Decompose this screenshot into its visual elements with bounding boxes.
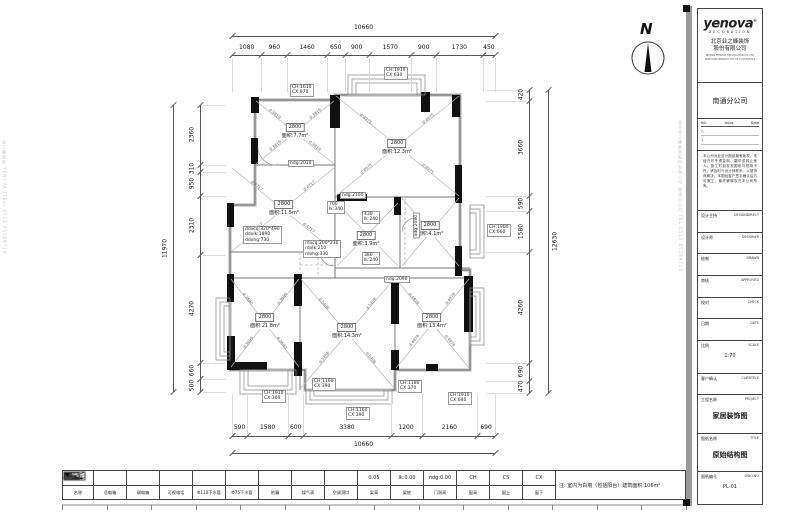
legend-item: 总电箱 [93, 471, 126, 499]
row-label-cn: 客户确认 [701, 376, 717, 382]
flag-icon: 0.05 [358, 471, 390, 486]
legend-item-label: 梁高 [358, 486, 390, 499]
room-height: 2800 [423, 313, 442, 322]
room-height: 2800 [421, 221, 440, 230]
room-label: 2800面积:21.8m² [250, 303, 280, 329]
text-icon: CS [490, 471, 522, 486]
dim-ext [486, 393, 527, 394]
branch-name: 南通分公司 [698, 83, 762, 119]
text-icon: ndg:0.00 [424, 471, 456, 486]
callout: CH:1160CX:390 [346, 407, 370, 420]
callout: ndg:2090 [384, 276, 410, 283]
callout: CH:1610CX:970 [290, 84, 314, 97]
room-height: 2800 [275, 200, 294, 209]
legend-item: lk:0.00梁底 [390, 471, 423, 499]
watermark-left: 业之峰装饰 YENOVA (TEL) 0513 85289710 [1, 140, 7, 254]
room-area: 面积:12.3m² [382, 149, 412, 155]
dim-label: 950 [189, 170, 196, 198]
ruler-tick [329, 505, 330, 510]
callout-line: lk:340 [329, 207, 343, 212]
company-logo-block: yenova® DECORATION 北京业之峰装饰 股份有限公司 BEIJIN… [698, 9, 762, 83]
title-block-row: 设计师DESIGNER [698, 233, 762, 255]
callout-line: ndg:2080 [414, 215, 419, 237]
legend-item-label: 门洞高 [424, 486, 456, 499]
title-block-row: 绘制DRAWN [698, 254, 762, 276]
ruler-tick [374, 505, 375, 510]
dim-label: 2360 [189, 120, 196, 148]
callout: CH:1180CX:370 [398, 380, 422, 393]
callout-line: CX:970 [292, 90, 312, 95]
room-label: 2800面积:13.4m² [417, 303, 447, 329]
watermark-right: 北京业之峰装饰股份有限公司 南通分公司 TEL:0513 85289710 [677, 120, 683, 272]
row-label-cn: 日期 [701, 321, 709, 327]
row-label-en: DESIGNER [742, 235, 759, 239]
dim-ext [327, 58, 328, 92]
dim-label: 500 [189, 371, 196, 399]
dim-ext [486, 252, 527, 253]
callout-line: CX:370 [400, 386, 420, 391]
row-label-en: CLIENTELE [741, 376, 759, 380]
legend-item-label: 窗上 [490, 486, 522, 499]
callout: CH:1910CX:630 [384, 67, 408, 80]
room-area: 面积:14.3m² [332, 333, 362, 339]
callout: CH:1910CX:300 [262, 390, 286, 403]
dim-label: 1200 [392, 424, 420, 431]
room-label: 2800面积:7.7m² [282, 113, 309, 139]
dim-ext [436, 58, 437, 92]
dim-line [200, 105, 201, 392]
yenova-logo: yenova® [698, 15, 762, 30]
row-label-cn: 比例 [701, 343, 709, 349]
dim-ext [369, 58, 370, 92]
circle-icon [193, 471, 225, 486]
ruler-tick [285, 505, 286, 510]
title-block-row: 图纸名称TITLE原始结构图 [698, 434, 762, 472]
title-block-row: 审核APPROVED [698, 276, 762, 298]
row-label-en: SCALE [748, 343, 759, 347]
room-label: 2800面积:12.3m² [382, 129, 412, 155]
callout: 700lk:340 [327, 201, 345, 214]
dim-line [548, 90, 549, 393]
dim-total: 10660 [348, 441, 380, 448]
title-block-row: 客户确认CLIENTELE [698, 374, 762, 396]
room-label: 2800面积:14.3m² [332, 313, 362, 339]
ruler-tick [641, 505, 642, 510]
room-area: 面积:4.1m² [417, 231, 444, 237]
dim-label: 590 [518, 189, 525, 217]
diagbox-icon [127, 471, 159, 486]
legend-item: 可视电话 [159, 471, 192, 499]
legend-item-label: 地漏 [259, 486, 291, 499]
dim-label: 2160 [435, 424, 463, 431]
dim-ext [303, 394, 304, 434]
legend-item: 弱电箱 [126, 471, 159, 499]
callout-line: CX:300 [264, 396, 284, 401]
dim-total: 12630 [552, 225, 559, 257]
dim-ext [232, 58, 233, 92]
legend-item: Φ75下水管 [225, 471, 258, 499]
dim-label: 4260 [518, 293, 525, 321]
dim-ext [247, 394, 248, 434]
dim-label: 2310 [189, 211, 196, 239]
north-label: N [640, 20, 653, 38]
dim-label: 4270 [189, 294, 196, 322]
branch-label: 南通分公司 [713, 96, 748, 106]
row-label-en: APPROVED [741, 278, 759, 282]
dim-line [232, 436, 495, 437]
dim-ext [203, 165, 226, 166]
room-height: 2800 [286, 123, 305, 132]
row-label-cn: 审核 [701, 278, 709, 284]
legend-item: 地漏 [258, 471, 291, 499]
row-label-cn: 工程名称 [701, 397, 717, 403]
dim-ext [495, 58, 496, 92]
dim-ext [203, 379, 226, 380]
dim-ext [483, 58, 484, 92]
dim-label: 600 [282, 424, 310, 431]
dim-label: 1580 [518, 217, 525, 245]
dim-line [232, 55, 495, 56]
room-height: 2800 [388, 139, 407, 148]
dim-ext [287, 58, 288, 92]
row-label-en: DESIGNDIRECT [734, 213, 759, 217]
room-height: 2800 [357, 231, 376, 240]
title-block-row: 工程名称PROJECT家居装饰图 [698, 395, 762, 433]
wedge-icon [94, 471, 126, 486]
issue-col-date: Date [751, 121, 759, 125]
callout: CH:1910CX:640 [448, 392, 472, 405]
legend-item-label: Φ75下水管 [226, 486, 258, 499]
ruler-tick [62, 505, 63, 510]
row-value: PL-01 [701, 480, 759, 490]
symbol-text: 0.05 [368, 475, 379, 481]
callout: 430lk:240 [362, 211, 380, 224]
dim-label: 420 [518, 81, 525, 109]
title-block-rows: 设计主持DESIGNDIRECT设计师DESIGNER绘制DRAWN审核APPR… [698, 211, 762, 504]
legend-item: CH窗高 [456, 471, 489, 499]
room-height: 2800 [338, 323, 357, 332]
dim-ext [486, 211, 527, 212]
row-label-cn: 校对 [701, 300, 709, 306]
dim-label: 900 [343, 44, 371, 51]
ruler-tick [552, 505, 553, 510]
room-label: 2800面积:4.1m² [417, 211, 444, 237]
dim-ext [203, 172, 226, 173]
dim-ext [495, 394, 496, 434]
row-label-en: DWG.NO [745, 474, 759, 478]
room-height: 2800 [256, 313, 275, 322]
room-label: 2800面积:11.5m² [269, 190, 299, 216]
dim-label: 590 [226, 424, 254, 431]
room-area: 面积:3.9m² [353, 241, 380, 247]
issue-row: 1 [701, 136, 759, 145]
circlesm-icon [226, 471, 258, 486]
dim-ext [203, 363, 226, 364]
room-area: 面积:7.7m² [282, 133, 309, 139]
text-icon: lk:0.00 [391, 471, 423, 486]
row-label-en: DRAWN [747, 256, 760, 260]
dim-label: 1460 [293, 44, 321, 51]
dim-label: 1080 [233, 44, 261, 51]
callout-line: lk:240 [364, 217, 378, 222]
ruler-tick [463, 505, 464, 510]
dim-label: 470 [518, 372, 525, 400]
callout-line: rdxhg:330 [305, 252, 339, 257]
legend-item: ndg:0.00门洞高 [423, 471, 456, 499]
dim-label: 1730 [445, 44, 473, 51]
dim-ext [411, 58, 412, 92]
dim-ext [261, 58, 262, 92]
callout-line: ddxhg:730 [245, 238, 280, 243]
legend-item: Φ110下水管 [192, 471, 225, 499]
issue-col-issue: Issue [724, 121, 733, 125]
row-label-cn: 绘制 [701, 256, 709, 262]
legend-item-label: 可视电话 [160, 486, 192, 499]
north-arrow [632, 42, 664, 74]
dim-total: 11970 [162, 232, 169, 264]
row-label-en: DATE [750, 321, 759, 325]
callout: ndg:2080 [413, 213, 420, 239]
legend-item-label: 煤气表 [292, 486, 324, 499]
title-block-row: 设计主持DESIGNDIRECT [698, 211, 762, 233]
legend-strip: 图例 名称 总电箱弱电箱可视电话Φ110下水管Φ75下水管地漏煤气表空调洞口0.… [62, 470, 686, 500]
divider-dot-bottom [683, 499, 690, 506]
callout: 380lk:240 [362, 252, 380, 265]
row-label-en: TITLE [750, 436, 759, 440]
legend-header-name: 名称 [63, 486, 93, 499]
dim-line [232, 36, 495, 37]
legend-item-label: 梁底 [391, 486, 423, 499]
dim-ext [345, 58, 346, 92]
callout-line: ndg:2100 [342, 193, 364, 198]
title-block-row: 校对CHECK [698, 298, 762, 320]
divider-dot-top [683, 5, 690, 12]
dim-label: 3660 [518, 134, 525, 162]
drawing-sheet: N 10809601460650900157090017304501066059… [0, 0, 800, 512]
callout-line: CX:630 [386, 73, 406, 78]
dim-ext [486, 101, 527, 102]
callout-line: ndg:2090 [386, 277, 408, 282]
legend-item: CX窗下 [522, 471, 555, 499]
company-name-en2: NANTONG BRANCH TEL:0513 85289710 [701, 58, 759, 62]
legend-item-label: 空调洞口 [325, 486, 357, 499]
room-label: 2800面积:3.9m² [353, 221, 380, 247]
legend-item: 空调洞口 [324, 471, 357, 499]
room-area: 面积:13.4m² [417, 323, 447, 329]
legend-item: 煤气表 [291, 471, 324, 499]
ruler-tick [107, 505, 108, 510]
dim-ext [203, 196, 226, 197]
issue-table: NO. Issue Date △ 1 [698, 119, 762, 151]
dim-label: 3380 [333, 424, 361, 431]
title-block: yenova® DECORATION 北京业之峰装饰 股份有限公司 BEIJIN… [697, 8, 763, 505]
callout: ddxcq:320*490ddxlk:1890ddxhg:730 [243, 226, 282, 244]
dim-ext [203, 392, 226, 393]
row-label-en: PROJECT [745, 397, 759, 401]
gasbox-icon [292, 471, 324, 486]
row-value: 家居装饰图 [701, 403, 759, 421]
callout-line: CX:640 [450, 398, 470, 403]
sheet-divider [686, 6, 692, 506]
title-block-row: 图纸编号DWG.NOPL-01 [698, 472, 762, 504]
callout: CH:1900CX:660 [487, 224, 511, 237]
callout: CH:1160CX:390 [312, 378, 336, 391]
ruler-tick [597, 505, 598, 510]
text-icon: CH [457, 471, 489, 486]
dim-line [232, 453, 495, 454]
callout-line: CX:660 [489, 230, 509, 235]
dim-label: 900 [410, 44, 438, 51]
dim-line [529, 90, 530, 393]
text-icon: CX [523, 471, 555, 486]
callout-line: lk:240 [364, 258, 378, 263]
legend-item-label: 窗下 [523, 486, 555, 499]
row-label-cn: 图纸名称 [701, 436, 717, 442]
row-label-en: CHECK [748, 300, 759, 304]
dim-ext [203, 105, 226, 106]
callout-line: ndg:2010 [290, 161, 312, 166]
linesbox-icon [160, 471, 192, 486]
ruler-tick [196, 505, 197, 510]
callout: rdxcq:200*230rdxlk:210rdxhg:330 [303, 240, 341, 258]
dim-ext [203, 255, 226, 256]
title-block-row: 日期DATE [698, 319, 762, 341]
area-note: 注: 室内为白墙（包括阳台）建筑面积:106m² [555, 471, 685, 499]
issue-col-no: NO. [701, 121, 707, 125]
row-value: 1:70 [701, 349, 759, 359]
dim-label: 450 [475, 44, 503, 51]
row-label-cn: 设计主持 [701, 213, 717, 219]
title-block-row: 比例SCALE1:70 [698, 341, 762, 374]
dim-ext [422, 394, 423, 434]
legend-item: 0.05梁高 [357, 471, 390, 499]
dim-total: 10660 [348, 24, 380, 31]
ruler-tick [419, 505, 420, 510]
room-area: 面积:21.8m² [250, 323, 280, 329]
ruler-tick [151, 505, 152, 510]
legend-item-label: 弱电箱 [127, 486, 159, 499]
callout: ndg:2100 [340, 192, 366, 199]
issue-row: △ [701, 127, 759, 136]
drain-icon [259, 471, 291, 486]
acircle-icon [325, 471, 357, 486]
row-label-cn: 设计师 [701, 235, 713, 241]
disclaimer-text: 本公司对此设计图纸拥有版权，未经许可不得复制、翻印或转让他人。施工时如发现图纸与… [698, 151, 762, 211]
legend-item: CS窗上 [489, 471, 522, 499]
dim-label: 960 [260, 44, 288, 51]
ruler-tick [508, 505, 509, 510]
room-area: 面积:11.5m² [269, 210, 299, 216]
ruler-tick [240, 505, 241, 510]
callout-line: CX:390 [314, 384, 334, 389]
callout: ndg:2010 [288, 160, 314, 167]
legend-item-label: Φ110下水管 [193, 486, 225, 499]
legend-item-label: 总电箱 [94, 486, 126, 499]
dim-line [173, 105, 174, 392]
dim-label: 1580 [254, 424, 282, 431]
row-label-cn: 图纸编号 [701, 474, 717, 480]
row-value: 原始结构图 [701, 442, 759, 460]
callout-line: CX:390 [348, 413, 368, 418]
legend-item-label: 窗高 [457, 486, 489, 499]
dim-label: 1570 [376, 44, 404, 51]
